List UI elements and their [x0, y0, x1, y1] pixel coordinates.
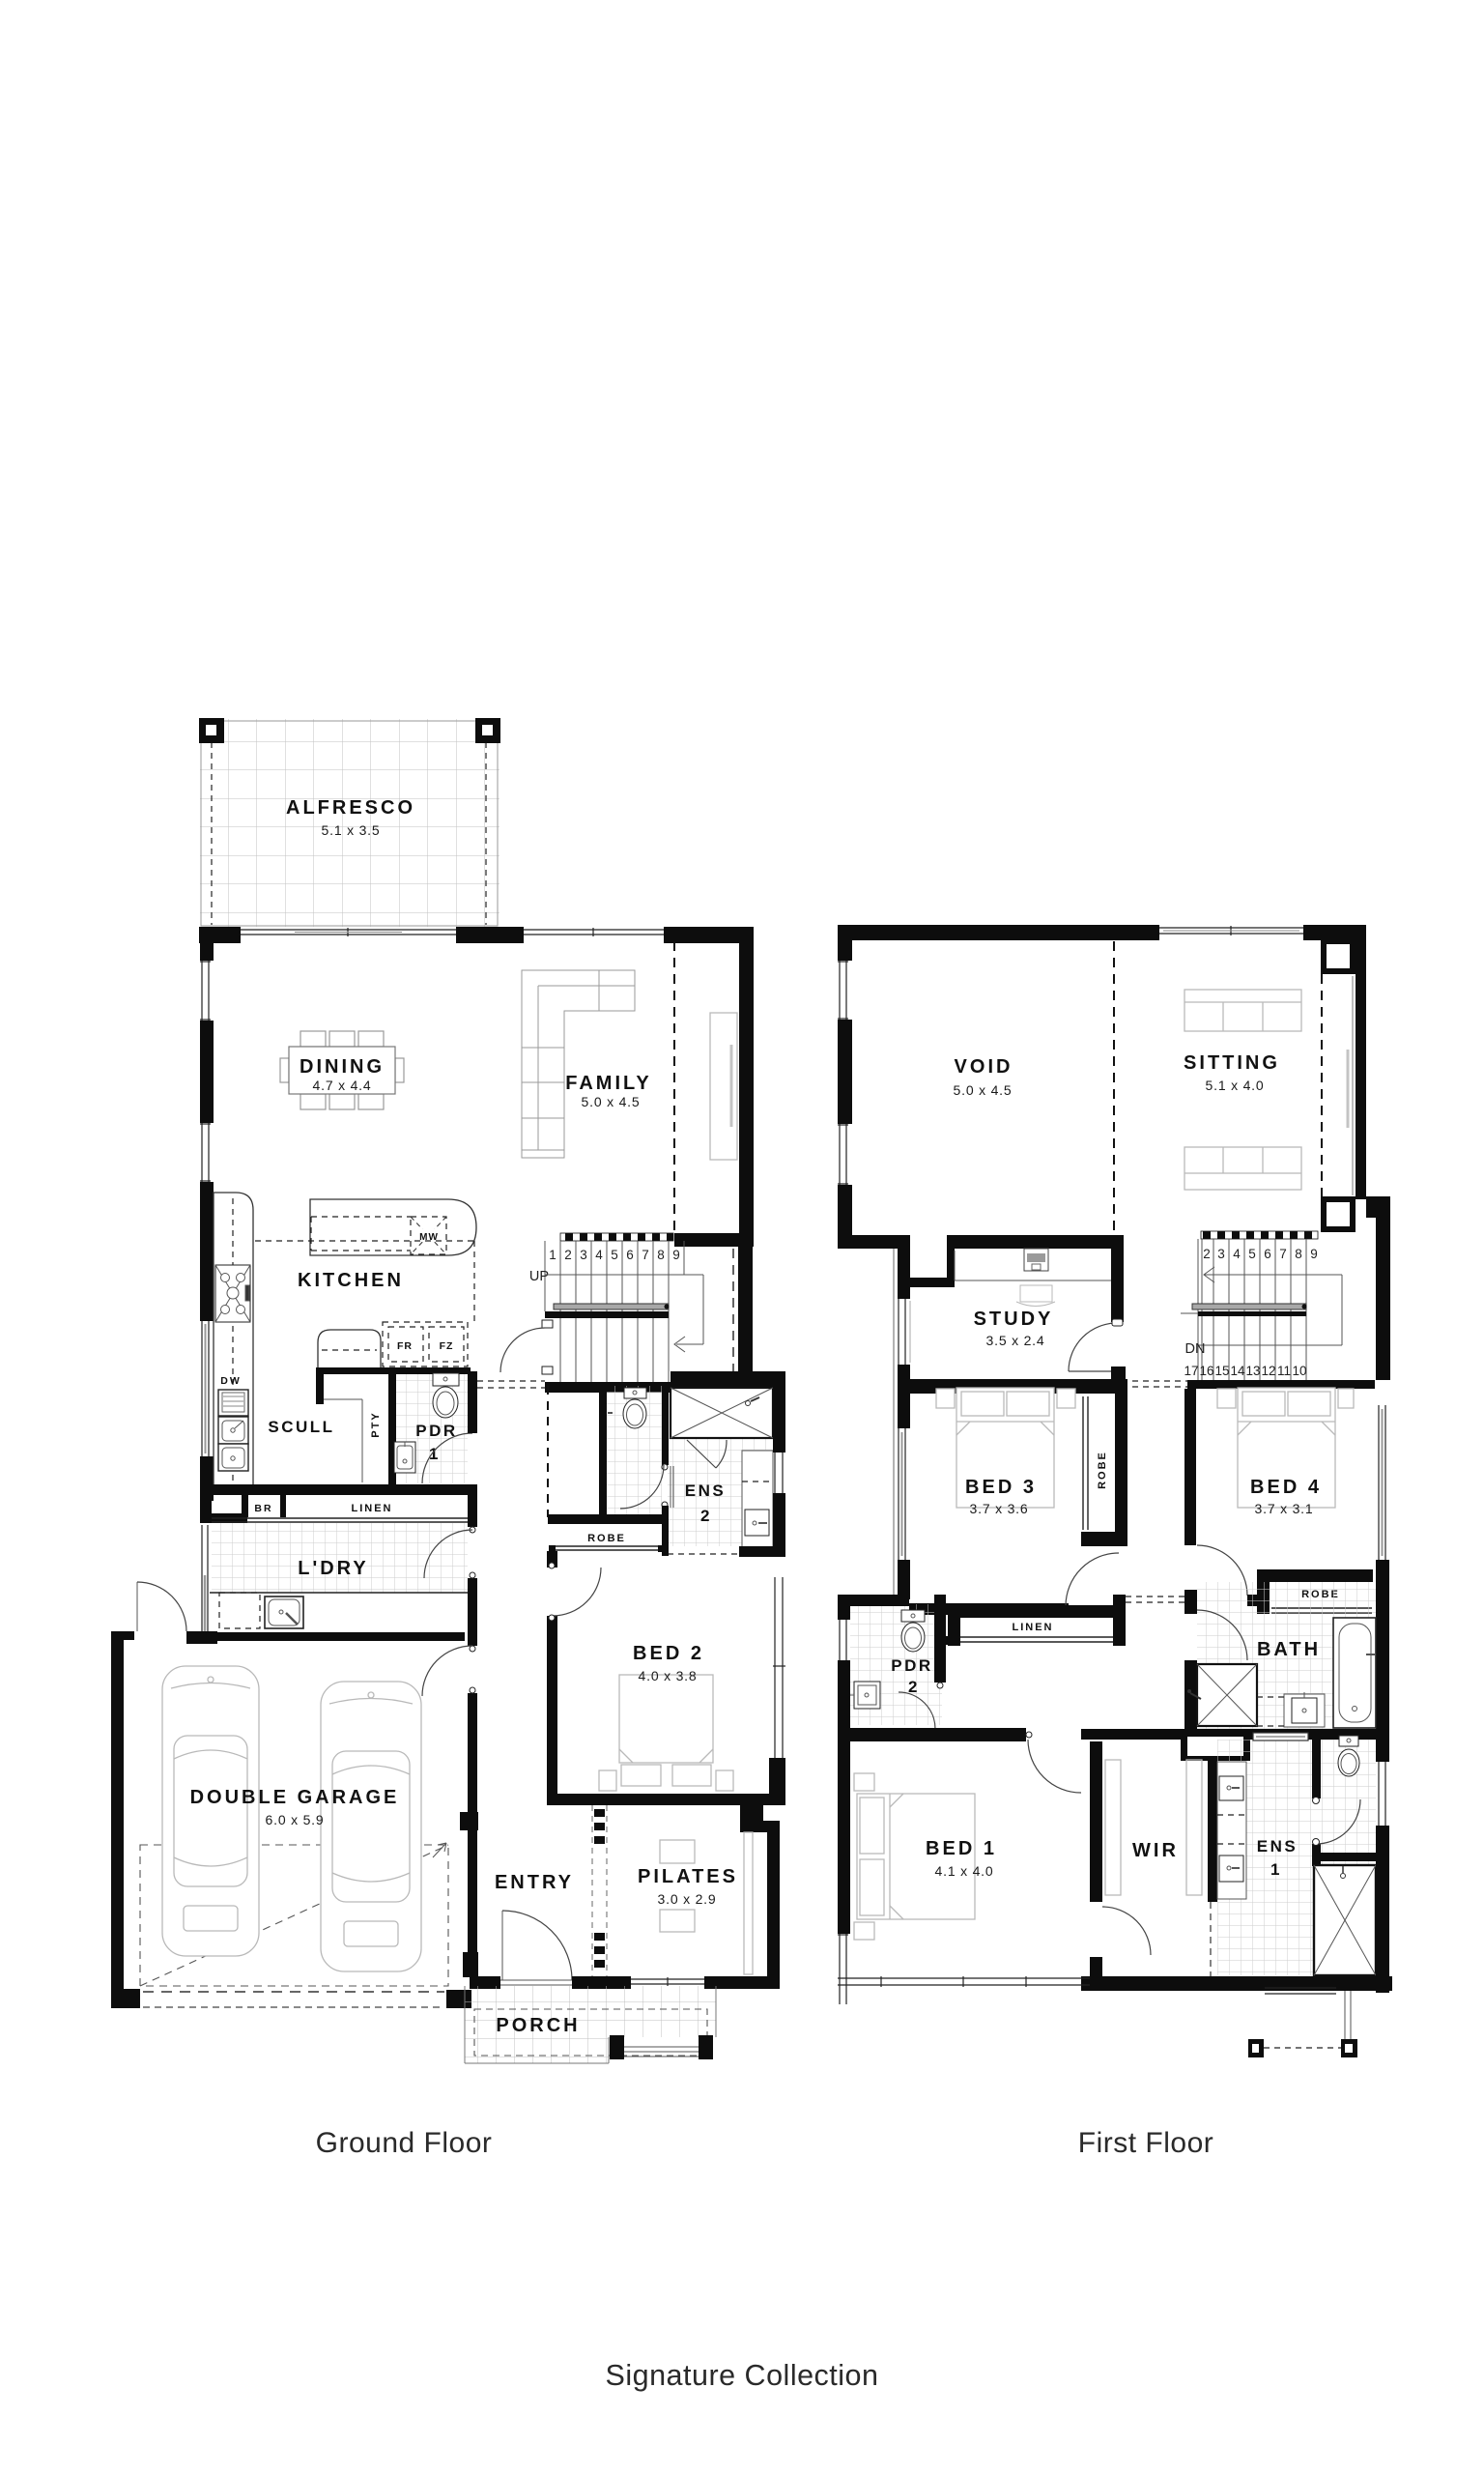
svg-text:FZ: FZ [440, 1340, 454, 1352]
svg-text:Ground Floor: Ground Floor [316, 2127, 493, 2159]
svg-text:4.7 x 4.4: 4.7 x 4.4 [313, 1078, 372, 1093]
svg-text:BED 3: BED 3 [965, 1477, 1037, 1498]
svg-text:PTY: PTY [370, 1411, 382, 1437]
svg-text:ALFRESCO: ALFRESCO [286, 797, 415, 819]
svg-text:16: 16 [1199, 1364, 1213, 1378]
svg-text:5.0 x 4.5: 5.0 x 4.5 [954, 1082, 1013, 1098]
svg-text:ENS: ENS [685, 1482, 726, 1500]
svg-text:VOID: VOID [955, 1056, 1013, 1078]
svg-text:BATH: BATH [1257, 1639, 1321, 1660]
svg-text:1: 1 [1270, 1860, 1282, 1879]
svg-text:LINEN: LINEN [1013, 1622, 1054, 1633]
svg-text:3: 3 [580, 1248, 587, 1262]
svg-text:5.1 x 4.0: 5.1 x 4.0 [1206, 1078, 1265, 1093]
svg-text:7: 7 [1279, 1247, 1287, 1261]
svg-text:12: 12 [1261, 1364, 1275, 1378]
svg-text:BED 2: BED 2 [633, 1643, 704, 1664]
svg-text:4.1 x 4.0: 4.1 x 4.0 [935, 1863, 994, 1879]
svg-text:SITTING: SITTING [1184, 1052, 1280, 1074]
svg-text:STUDY: STUDY [974, 1309, 1054, 1330]
svg-text:LINEN: LINEN [352, 1503, 393, 1514]
svg-text:DINING: DINING [300, 1056, 385, 1078]
svg-text:PORCH: PORCH [496, 2015, 580, 2036]
svg-text:1: 1 [549, 1248, 556, 1262]
svg-text:5: 5 [611, 1248, 618, 1262]
svg-text:2: 2 [564, 1248, 572, 1262]
svg-text:BR: BR [254, 1503, 272, 1514]
svg-text:FR: FR [397, 1340, 413, 1352]
svg-text:5.0 x 4.5: 5.0 x 4.5 [582, 1094, 641, 1109]
svg-text:6: 6 [1264, 1247, 1271, 1261]
svg-text:FAMILY: FAMILY [565, 1073, 652, 1094]
svg-text:3.0 x 2.9: 3.0 x 2.9 [658, 1891, 717, 1907]
svg-text:2: 2 [700, 1507, 712, 1525]
svg-text:10: 10 [1292, 1364, 1306, 1378]
svg-text:ENTRY: ENTRY [495, 1872, 574, 1893]
svg-text:3.7 x 3.1: 3.7 x 3.1 [1255, 1501, 1314, 1516]
svg-text:L'DRY: L'DRY [298, 1558, 368, 1579]
svg-text:4: 4 [595, 1248, 603, 1262]
svg-text:Signature Collection: Signature Collection [606, 2359, 879, 2392]
svg-text:3.7 x 3.6: 3.7 x 3.6 [970, 1501, 1029, 1516]
svg-text:DN: DN [1185, 1341, 1206, 1357]
svg-text:SCULL: SCULL [268, 1418, 334, 1436]
svg-text:3.5 x 2.4: 3.5 x 2.4 [986, 1333, 1045, 1348]
svg-text:ROBE: ROBE [587, 1533, 626, 1544]
svg-text:4: 4 [1233, 1247, 1241, 1261]
svg-text:17: 17 [1184, 1364, 1198, 1378]
svg-text:PDR: PDR [891, 1656, 932, 1675]
svg-text:4.0 x 3.8: 4.0 x 3.8 [639, 1668, 698, 1683]
svg-text:1: 1 [429, 1445, 441, 1463]
svg-text:First Floor: First Floor [1078, 2127, 1214, 2159]
svg-text:13: 13 [1245, 1364, 1260, 1378]
svg-text:DW: DW [220, 1375, 242, 1387]
svg-text:14: 14 [1230, 1364, 1245, 1378]
svg-text:15: 15 [1214, 1364, 1229, 1378]
svg-text:2: 2 [1203, 1247, 1211, 1261]
svg-text:ENS: ENS [1257, 1837, 1298, 1855]
svg-text:9: 9 [672, 1248, 680, 1262]
svg-text:DOUBLE GARAGE: DOUBLE GARAGE [190, 1787, 400, 1808]
svg-text:5: 5 [1248, 1247, 1256, 1261]
svg-text:8: 8 [1295, 1247, 1302, 1261]
svg-text:6.0 x 5.9: 6.0 x 5.9 [266, 1812, 325, 1827]
svg-text:8: 8 [657, 1248, 665, 1262]
svg-text:5.1 x 3.5: 5.1 x 3.5 [322, 822, 381, 838]
svg-text:7: 7 [642, 1248, 649, 1262]
svg-text:6: 6 [626, 1248, 634, 1262]
svg-text:11: 11 [1277, 1364, 1291, 1378]
svg-text:WIR: WIR [1132, 1840, 1179, 1861]
svg-text:KITCHEN: KITCHEN [298, 1270, 404, 1291]
svg-text:ROBE: ROBE [1097, 1451, 1108, 1489]
svg-text:BED 4: BED 4 [1250, 1477, 1322, 1498]
svg-text:BED 1: BED 1 [926, 1838, 997, 1859]
svg-text:9: 9 [1310, 1247, 1318, 1261]
svg-text:UP: UP [529, 1269, 549, 1284]
svg-text:3: 3 [1217, 1247, 1225, 1261]
svg-text:PILATES: PILATES [638, 1866, 738, 1887]
